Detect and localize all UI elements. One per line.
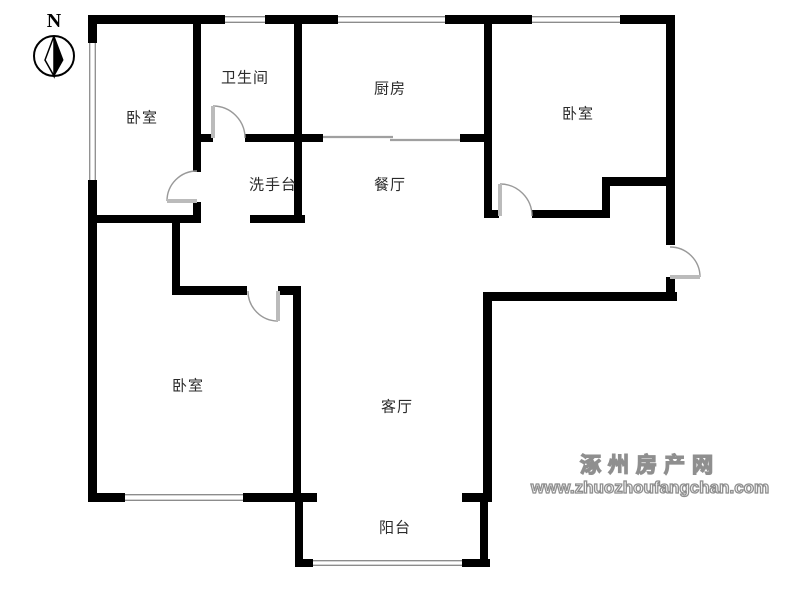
wall (620, 15, 674, 24)
wall (484, 15, 492, 218)
wall (88, 493, 125, 502)
wall (172, 223, 180, 293)
entry-door-arc (670, 247, 700, 277)
room-label-bathroom: 卫生间 (221, 67, 269, 88)
wall (483, 292, 492, 502)
wall (480, 497, 488, 566)
room-label-balcony: 阳台 (379, 517, 411, 538)
wall (195, 134, 213, 142)
room-label-bedroom-top-right: 卧室 (562, 103, 594, 124)
room-label-living-room: 客厅 (381, 396, 413, 417)
watermark: 涿州房产网 www.zhuozhoufangchan.com (515, 454, 785, 498)
bedroom-top-right-door-arc (500, 184, 532, 216)
wall (245, 134, 302, 142)
wall (172, 286, 247, 295)
room-label-washbasin: 洗手台 (249, 174, 297, 195)
wall (295, 559, 313, 567)
wall (250, 215, 305, 223)
wall (88, 215, 200, 223)
wall (666, 15, 675, 245)
wall (88, 15, 225, 24)
wall (602, 177, 670, 186)
floorplan-canvas: 卧室卫生间厨房卧室洗手台餐厅卧室客厅阳台 N 涿州房产网 www.zhuozho… (0, 0, 800, 600)
room-label-bedroom-top-left: 卧室 (126, 107, 158, 128)
wall (88, 15, 97, 43)
watermark-url: www.zhuozhoufangchan.com (515, 478, 785, 498)
room-label-bedroom-bottom-left: 卧室 (172, 375, 204, 396)
wall (488, 210, 499, 218)
wall (483, 292, 677, 301)
bathroom-door-arc (213, 106, 245, 138)
wall (193, 15, 201, 172)
compass-icon: N (27, 4, 87, 88)
wall (295, 497, 303, 566)
watermark-site-name: 涿州房产网 (515, 454, 785, 478)
wall (532, 210, 610, 218)
bedroom-bottom-left-door-arc (248, 291, 278, 321)
wall (302, 134, 323, 142)
bedroom-top-left-door-arc (167, 171, 197, 201)
wall (243, 493, 317, 502)
wall (88, 180, 97, 502)
wall (602, 177, 610, 218)
room-label-dining-room: 餐厅 (374, 174, 406, 195)
wall (460, 134, 485, 142)
compass-north-label: N (47, 10, 62, 32)
room-label-kitchen: 厨房 (374, 78, 406, 99)
wall (293, 286, 301, 497)
